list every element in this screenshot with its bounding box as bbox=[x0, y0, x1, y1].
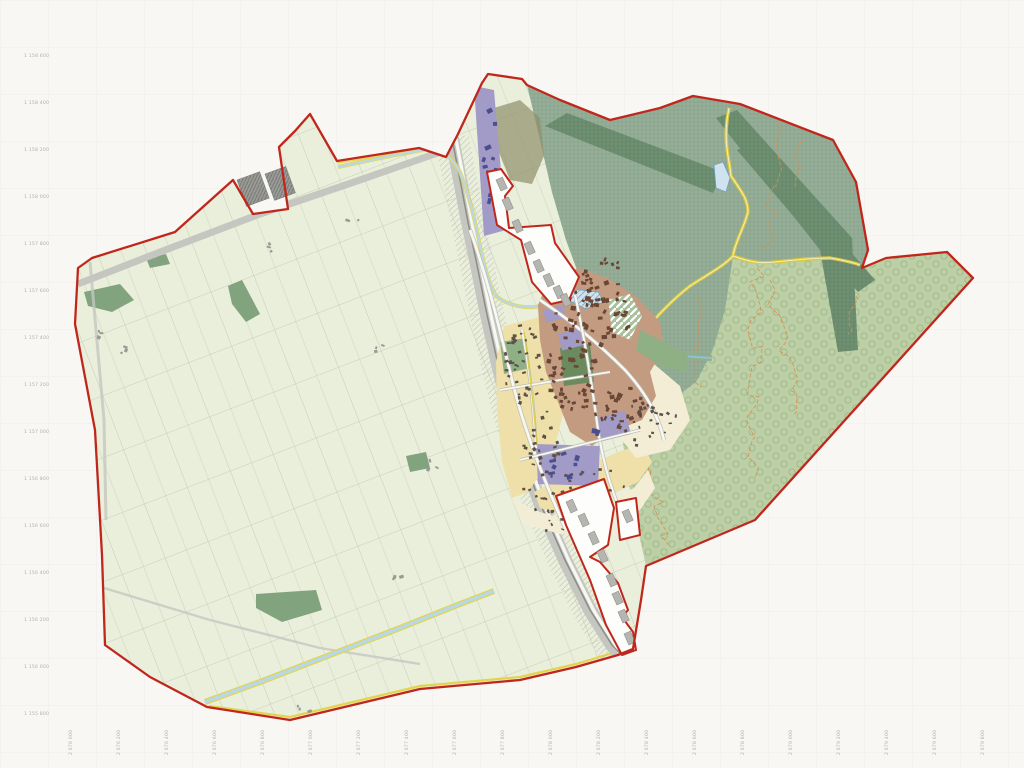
coord-label-east: 2 679 200 bbox=[836, 730, 842, 755]
coord-label-east: 2 679 600 bbox=[932, 730, 938, 755]
coordinate-labels-left: 1 158 6001 158 4001 158 2001 158 0001 15… bbox=[24, 53, 49, 717]
coord-label-east: 2 676 200 bbox=[116, 730, 122, 755]
coord-label-north: 1 158 200 bbox=[24, 147, 49, 153]
coord-label-east: 2 677 200 bbox=[356, 730, 362, 755]
coord-label-east: 2 677 800 bbox=[500, 730, 506, 755]
coord-label-east: 2 676 600 bbox=[212, 730, 218, 755]
coord-label-east: 2 678 600 bbox=[692, 730, 698, 755]
coord-label-north: 1 157 000 bbox=[24, 429, 49, 435]
coord-label-east: 2 678 400 bbox=[644, 730, 650, 755]
coord-label-east: 2 676 800 bbox=[260, 730, 266, 755]
coord-label-east: 2 678 200 bbox=[596, 730, 602, 755]
coord-label-north: 1 156 200 bbox=[24, 617, 49, 623]
coord-label-east: 2 677 600 bbox=[452, 730, 458, 755]
coord-label-east: 2 676 400 bbox=[164, 730, 170, 755]
coord-label-north: 1 156 600 bbox=[24, 523, 49, 529]
coord-label-north: 1 156 800 bbox=[24, 476, 49, 482]
zoning-map: 1 158 6001 158 4001 158 2001 158 0001 15… bbox=[0, 0, 1024, 768]
coord-label-east: 2 676 000 bbox=[68, 730, 74, 755]
coord-label-east: 2 678 800 bbox=[740, 730, 746, 755]
coord-label-east: 2 679 800 bbox=[980, 730, 986, 755]
coord-label-east: 2 677 400 bbox=[404, 730, 410, 755]
coord-label-north: 1 158 400 bbox=[24, 100, 49, 106]
coord-label-north: 1 157 800 bbox=[24, 241, 49, 247]
coord-label-north: 1 157 200 bbox=[24, 382, 49, 388]
coord-label-north: 1 155 800 bbox=[24, 711, 49, 717]
coord-label-north: 1 156 400 bbox=[24, 570, 49, 576]
coord-label-north: 1 156 000 bbox=[24, 664, 49, 670]
coord-label-north: 1 158 600 bbox=[24, 53, 49, 59]
zoning-map-sheet: 1 158 6001 158 4001 158 2001 158 0001 15… bbox=[0, 0, 1024, 768]
coord-label-east: 2 678 000 bbox=[548, 730, 554, 755]
coord-label-north: 1 158 000 bbox=[24, 194, 49, 200]
coord-label-east: 2 679 400 bbox=[884, 730, 890, 755]
coord-label-north: 1 157 600 bbox=[24, 288, 49, 294]
coord-label-east: 2 677 000 bbox=[308, 730, 314, 755]
coord-label-east: 2 679 000 bbox=[788, 730, 794, 755]
coord-label-north: 1 157 400 bbox=[24, 335, 49, 341]
